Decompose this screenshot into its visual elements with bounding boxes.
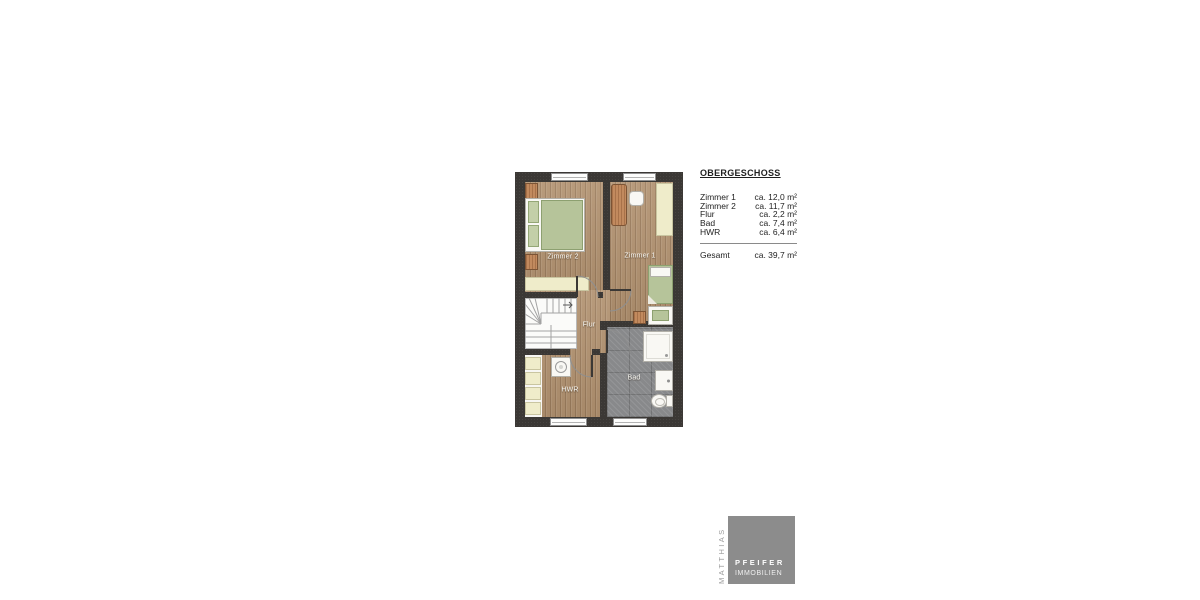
room-label-zimmer1: Zimmer 1 (624, 253, 655, 260)
room-label-zimmer2: Zimmer 2 (547, 254, 578, 261)
room-label-flur: Flur (583, 322, 596, 329)
legend-total-label: Gesamt (700, 251, 730, 260)
legend-title: OBERGESCHOSS (700, 168, 797, 179)
room-label-bad: Bad (627, 375, 640, 382)
legend-divider (700, 243, 797, 244)
logo-name: PFEIFER (735, 558, 785, 567)
logo-square: PFEIFER IMMOBILIEN (728, 516, 795, 584)
legend: OBERGESCHOSS Zimmer 1 ca. 12,0 m² Zimmer… (700, 168, 797, 259)
legend-row-value: ca. 6,4 m² (759, 228, 797, 237)
legend-total-row: Gesamt ca. 39,7 m² (700, 251, 797, 260)
room-label-hwr: HWR (561, 387, 578, 394)
legend-total-value: ca. 39,7 m² (754, 251, 797, 260)
logo-subtitle: IMMOBILIEN (735, 570, 782, 577)
stair-direction-arrow (563, 302, 572, 308)
floorplan: Zimmer 2 Zimmer 1 Flur HWR Bad (515, 172, 683, 427)
legend-row-label: HWR (700, 228, 720, 237)
logo-pfeifer-immobilien: MATTHIAS PFEIFER IMMOBILIEN (715, 516, 795, 584)
logo-vertical-text: MATTHIAS (715, 516, 728, 584)
legend-row: HWR ca. 6,4 m² (700, 228, 797, 237)
door-swing-overlay (515, 172, 683, 427)
